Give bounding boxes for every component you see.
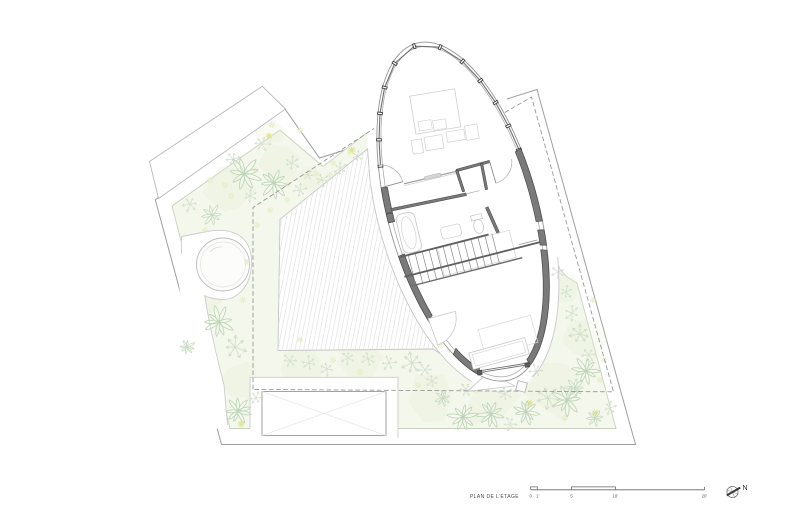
svg-text:1’: 1’ <box>536 494 539 499</box>
svg-text:10’: 10’ <box>613 494 619 499</box>
svg-text:20’: 20’ <box>702 494 708 499</box>
svg-text:N: N <box>743 485 748 492</box>
svg-text:PLAN DE L’ÉTAGE: PLAN DE L’ÉTAGE <box>470 493 519 500</box>
